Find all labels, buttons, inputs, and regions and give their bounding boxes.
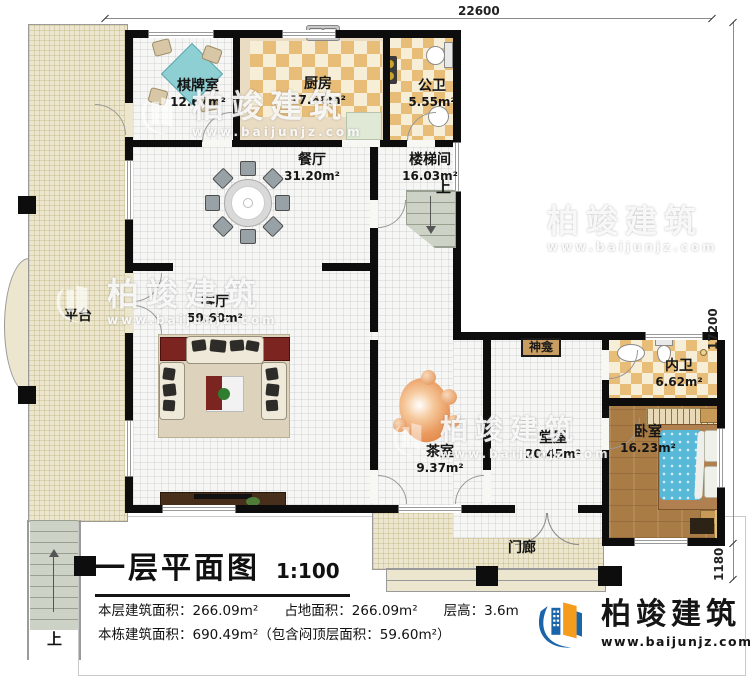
wall: [609, 398, 718, 406]
window: [282, 30, 336, 38]
sofa-pillow: [245, 340, 260, 352]
stair-arrow-line: [430, 196, 431, 228]
tea-decor-dot: [393, 418, 407, 432]
window: [162, 505, 236, 513]
area-stats-line2: 本栋建筑面积：690.49m²（包含闷顶层面积：59.60m²）: [98, 623, 477, 643]
brand-name: 柏竣建筑: [601, 600, 750, 630]
door-gap: [125, 273, 133, 333]
room-label-neiwei: 内卫 6.62m²: [655, 358, 702, 389]
brand-website: www.baijunjz.com: [601, 634, 750, 649]
brand-logo-icon: [537, 597, 591, 651]
wall: [322, 263, 378, 271]
wall: [370, 340, 378, 472]
wall: [578, 505, 604, 513]
window: [634, 538, 688, 546]
room-label-dining: 餐厅 31.20m²: [284, 152, 340, 183]
column: [18, 386, 36, 404]
door-gap: [370, 200, 378, 228]
watermark: 柏竣建筑 www.baijunjz.com: [495, 205, 718, 254]
plan-scale: 1:100: [276, 559, 340, 583]
stair-up-label: 上: [47, 628, 62, 649]
stat-total-area: 本栋建筑面积：690.49m²（包含闷顶层面积：59.60m²）: [98, 627, 451, 643]
exterior-stair-rail: [27, 520, 29, 660]
dimension-line-right: [733, 22, 734, 580]
chair: [240, 161, 256, 176]
table-plant: [218, 388, 230, 400]
wall: [233, 30, 240, 147]
sofa-pillow: [266, 400, 279, 412]
window: [125, 420, 133, 477]
stat-floor-area: 本层建筑面积：266.09m²: [98, 603, 258, 619]
sofa-pillow: [230, 339, 245, 351]
end-table: [160, 337, 188, 361]
column: [18, 196, 36, 214]
kitchen-mat: [346, 112, 382, 140]
room-label-terrace: 平台: [64, 308, 92, 325]
stat-footprint-area: 占地面积：266.09m²: [284, 603, 417, 619]
area-stats-line1: 本层建筑面积：266.09m²占地面积：266.09m²层高：3.6m: [98, 599, 545, 619]
exterior-stair-rail: [79, 520, 81, 660]
window: [148, 30, 214, 38]
chair: [275, 195, 290, 211]
room-label-porch: 门廊: [508, 540, 536, 557]
room-label-gongwei: 公卫 5.55m²: [408, 78, 455, 109]
door-gap: [602, 350, 609, 380]
column: [74, 556, 96, 576]
brand-logo: 柏竣建筑 www.baijunjz.com: [537, 597, 750, 651]
wall: [483, 340, 491, 472]
sofa-pillow: [162, 367, 176, 381]
chair: [205, 195, 220, 211]
stair-arrow-line: [53, 556, 54, 612]
passage-gap: [342, 140, 380, 147]
tv-screen: [194, 494, 252, 499]
dimension-top-value: 22600: [458, 4, 500, 18]
window: [645, 332, 703, 340]
brand-text: 柏竣建筑 www.baijunjz.com: [601, 600, 750, 649]
exterior-stairs: [30, 520, 78, 630]
watermark-logo-icon: [495, 208, 539, 252]
room-label-bedroom: 卧室 16.23m²: [620, 424, 676, 455]
sofa-pillow: [265, 383, 279, 396]
dimension-right-value: 17200: [706, 290, 720, 350]
dimension-bottom-right-value: 1180: [712, 543, 726, 581]
room-label-qipai: 棋牌室 12.67m²: [170, 78, 226, 109]
tea-decor-dot: [448, 415, 460, 427]
door-gap: [602, 418, 609, 450]
column: [598, 566, 622, 586]
door-gap: [407, 140, 435, 147]
room-label-living: 客厅 59.60m²: [187, 294, 243, 325]
terrace-floor: [28, 24, 128, 522]
tea-decor-dot: [441, 389, 457, 405]
dining-table-center: [243, 198, 253, 208]
floor-plan-sheet: 上: [0, 0, 750, 677]
wall: [383, 30, 390, 147]
door-gap: [370, 470, 378, 503]
sofa-pillow: [265, 367, 279, 381]
sofa-pillow: [209, 339, 226, 353]
door-gap: [483, 470, 491, 503]
window: [717, 428, 725, 488]
room-label-hall: 堂屋 20.45m²: [525, 430, 581, 461]
window: [125, 160, 133, 220]
room-label-kitchen: 厨房 17.66m²: [290, 76, 346, 107]
shrine-label: 神龛: [521, 338, 561, 357]
room-label-stairhall: 楼梯间 16.03m²: [402, 152, 458, 183]
room-label-tea: 茶室 9.37m²: [416, 444, 463, 475]
plan-title-row: 一层平面图1:100: [95, 543, 350, 597]
dimension-line-top: [105, 18, 712, 19]
toilet-tank: [444, 42, 453, 68]
sofa-pillow: [191, 339, 206, 352]
stat-floor-height: 层高：3.6m: [444, 603, 519, 619]
wall: [370, 147, 378, 200]
door-gap: [125, 103, 133, 137]
end-table: [262, 337, 290, 361]
wall: [125, 263, 173, 271]
wall: [370, 228, 378, 332]
sofa-pillow: [162, 383, 176, 396]
bedroom-tv-unit: [690, 518, 714, 534]
sofa-pillow: [163, 400, 176, 412]
stair-arrow-head: [49, 549, 59, 557]
stair-arrow-head: [426, 226, 436, 234]
chair: [240, 229, 256, 244]
tea-decor-dot: [421, 370, 436, 385]
watermark-text: 柏竣建筑 www.baijunjz.com: [547, 205, 718, 254]
toilet-bowl: [426, 46, 445, 65]
column: [476, 566, 498, 586]
towel-hook: [700, 349, 707, 356]
window: [398, 505, 462, 513]
plan-title: 一层平面图: [95, 551, 260, 586]
